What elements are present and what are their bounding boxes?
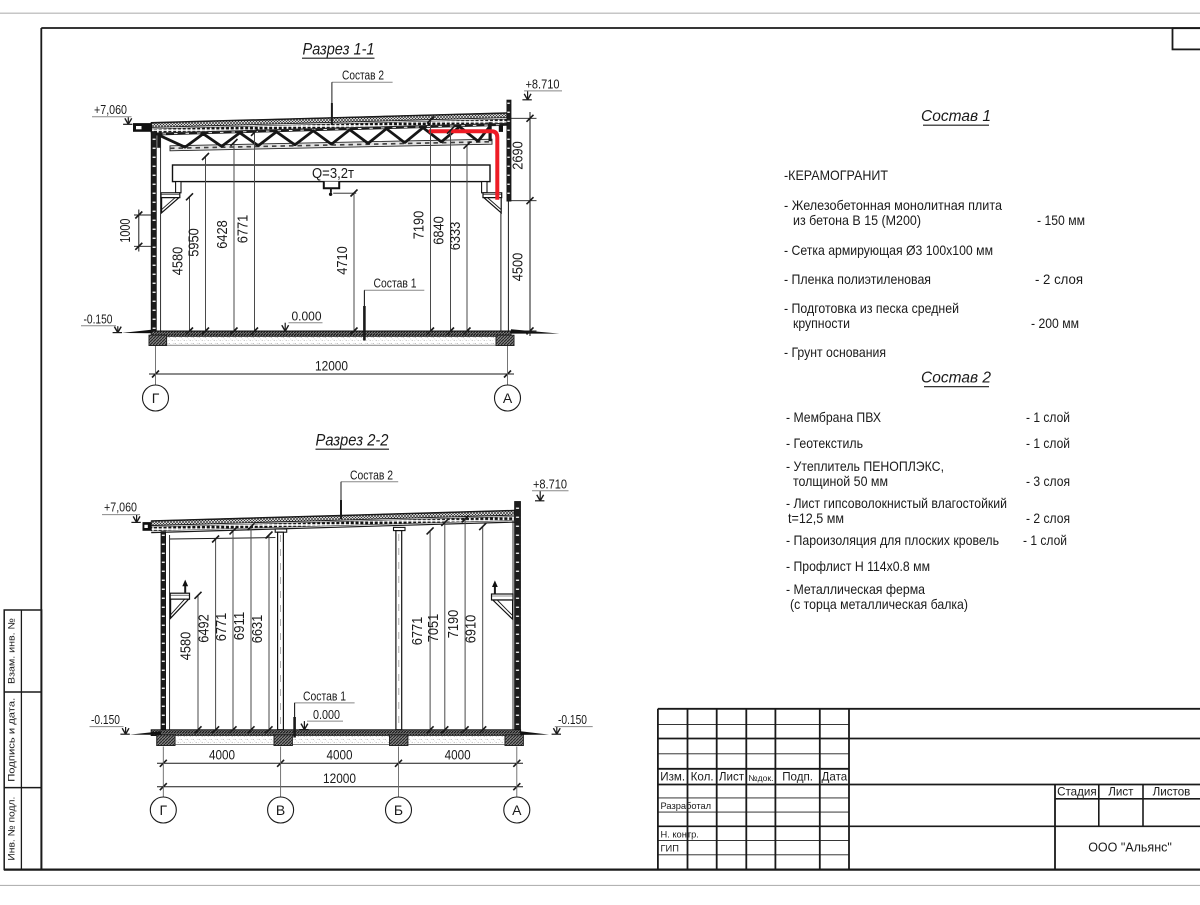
svg-text:4500: 4500 bbox=[511, 253, 527, 282]
svg-text:6771: 6771 bbox=[236, 215, 252, 244]
svg-text:4580: 4580 bbox=[179, 632, 195, 661]
svg-text:Q=3,2т: Q=3,2т bbox=[312, 165, 354, 182]
svg-text:№док.: №док. bbox=[748, 773, 773, 783]
svg-text:из бетона В 15 (М200): из бетона В 15 (М200) bbox=[793, 213, 921, 228]
svg-text:Изм.: Изм. bbox=[660, 771, 685, 784]
svg-text:-0.150: -0.150 bbox=[84, 312, 113, 327]
svg-text:12000: 12000 bbox=[315, 359, 348, 375]
svg-text:Состав 2: Состав 2 bbox=[921, 370, 991, 387]
svg-text:Лист: Лист bbox=[719, 771, 745, 784]
svg-text:Кол.: Кол. bbox=[691, 771, 714, 784]
svg-text:-КЕРАМОГРАНИТ: -КЕРАМОГРАНИТ bbox=[784, 168, 889, 183]
svg-text:- Профлист Н 114х0.8 мм: - Профлист Н 114х0.8 мм bbox=[786, 559, 930, 574]
svg-text:4000: 4000 bbox=[209, 748, 235, 764]
svg-text:+8.710: +8.710 bbox=[533, 477, 567, 492]
svg-text:Подп.: Подп. bbox=[782, 771, 813, 784]
svg-text:- Пленка полиэтиленовая: - Пленка полиэтиленовая bbox=[784, 272, 931, 287]
svg-text:4710: 4710 bbox=[335, 246, 351, 275]
svg-text:Лист: Лист bbox=[1108, 785, 1134, 798]
svg-text:7190: 7190 bbox=[446, 610, 462, 639]
svg-text:- 3 слоя: - 3 слоя bbox=[1026, 474, 1070, 489]
svg-text:4000: 4000 bbox=[445, 748, 471, 764]
svg-text:7190: 7190 bbox=[412, 211, 428, 240]
svg-text:4000: 4000 bbox=[327, 748, 353, 764]
svg-text:Г: Г bbox=[152, 390, 160, 406]
svg-text:- Лист гипсоволокнистый влагос: - Лист гипсоволокнистый влагостойкий bbox=[786, 496, 1007, 511]
svg-text:В: В bbox=[276, 802, 285, 818]
svg-text:Состав 2: Состав 2 bbox=[342, 68, 384, 83]
svg-text:- 200 мм: - 200 мм bbox=[1031, 316, 1079, 331]
svg-text:- Мембрана ПВХ: - Мембрана ПВХ bbox=[786, 410, 881, 425]
svg-text:- 1 слой: - 1 слой bbox=[1023, 533, 1067, 548]
svg-text:- 2 слоя: - 2 слоя bbox=[1035, 272, 1083, 287]
svg-text:6333: 6333 bbox=[448, 222, 464, 251]
svg-text:толщиной 50 мм: толщиной 50 мм bbox=[793, 474, 888, 489]
svg-text:Состав 1: Состав 1 bbox=[921, 108, 991, 125]
svg-text:Состав 2: Состав 2 bbox=[350, 468, 393, 483]
svg-text:Разрез 2-2: Разрез 2-2 bbox=[316, 432, 389, 450]
svg-text:0.000: 0.000 bbox=[292, 308, 322, 323]
svg-text:Н. контр.: Н. контр. bbox=[661, 830, 699, 840]
svg-text:2690: 2690 bbox=[511, 141, 527, 170]
svg-text:6840: 6840 bbox=[432, 216, 448, 245]
svg-text:+7,060: +7,060 bbox=[104, 500, 137, 515]
svg-text:-0.150: -0.150 bbox=[91, 712, 120, 727]
svg-text:- Железобетонная монолитная п: - Железобетонная монолитная плита bbox=[784, 198, 1002, 213]
svg-text:4580: 4580 bbox=[171, 247, 187, 276]
svg-text:- Геотекстиль: - Геотекстиль bbox=[786, 436, 863, 451]
svg-text:- 1 слой: - 1 слой bbox=[1026, 410, 1070, 425]
svg-text:Состав 1: Состав 1 bbox=[374, 275, 417, 290]
svg-text:ООО "Альянс": ООО "Альянс" bbox=[1088, 841, 1172, 855]
svg-text:6631: 6631 bbox=[250, 615, 266, 644]
svg-text:- 150 мм: - 150 мм bbox=[1037, 213, 1085, 228]
svg-text:(с торца металлическая балка): (с торца металлическая балка) bbox=[790, 597, 968, 612]
svg-text:- 1 слой: - 1 слой bbox=[1026, 436, 1070, 451]
svg-text:Разработал: Разработал bbox=[661, 801, 712, 811]
svg-text:Листов: Листов bbox=[1153, 785, 1191, 798]
svg-text:t=12,5 мм: t=12,5 мм bbox=[788, 511, 844, 526]
svg-text:ГИП: ГИП bbox=[661, 844, 679, 854]
svg-text:6910: 6910 bbox=[464, 615, 480, 644]
svg-text:+7,060: +7,060 bbox=[94, 102, 127, 117]
svg-text:- Пароизоляция для плоских кро: - Пароизоляция для плоских кровель bbox=[786, 533, 999, 548]
svg-text:Б: Б bbox=[394, 802, 403, 818]
svg-text:6428: 6428 bbox=[215, 220, 231, 249]
svg-text:Инв. № подл.: Инв. № подл. bbox=[7, 797, 17, 861]
svg-text:Подпись и дата.: Подпись и дата. bbox=[7, 698, 17, 782]
svg-text:Стадия: Стадия bbox=[1057, 785, 1097, 798]
svg-text:5950: 5950 bbox=[187, 228, 203, 257]
svg-text:6911: 6911 bbox=[232, 612, 248, 641]
svg-text:6771: 6771 bbox=[214, 613, 230, 642]
svg-text:А: А bbox=[512, 802, 522, 818]
svg-text:Состав 1: Состав 1 bbox=[303, 688, 346, 703]
svg-text:Взам. инв. №: Взам. инв. № bbox=[7, 618, 17, 684]
svg-text:0.000: 0.000 bbox=[313, 707, 340, 722]
svg-text:6771: 6771 bbox=[410, 617, 426, 646]
svg-text:1000: 1000 bbox=[118, 219, 134, 243]
svg-text:Г: Г bbox=[160, 802, 168, 818]
svg-text:-0.150: -0.150 bbox=[558, 712, 587, 727]
svg-text:- Сетка армирующая Ø3 100х100: - Сетка армирующая Ø3 100х100 мм bbox=[784, 243, 993, 258]
svg-text:12000: 12000 bbox=[323, 771, 356, 787]
svg-text:6492: 6492 bbox=[197, 614, 213, 643]
svg-text:- Грунт основания: - Грунт основания bbox=[784, 345, 886, 360]
svg-text:крупности: крупности bbox=[793, 316, 850, 331]
svg-text:Дата: Дата bbox=[822, 771, 848, 784]
svg-text:Разрез 1-1: Разрез 1-1 bbox=[303, 41, 375, 59]
svg-text:- Подготовка из песка средней: - Подготовка из песка средней bbox=[784, 301, 959, 316]
svg-text:- 2 слоя: - 2 слоя bbox=[1026, 511, 1070, 526]
svg-text:А: А bbox=[503, 390, 513, 406]
svg-text:7051: 7051 bbox=[426, 614, 442, 643]
svg-text:- Утеплитель ПЕНОПЛЭКС,: - Утеплитель ПЕНОПЛЭКС, bbox=[786, 459, 944, 474]
svg-text:- Металлическая ферма: - Металлическая ферма bbox=[786, 582, 925, 597]
svg-text:+8.710: +8.710 bbox=[526, 77, 560, 92]
